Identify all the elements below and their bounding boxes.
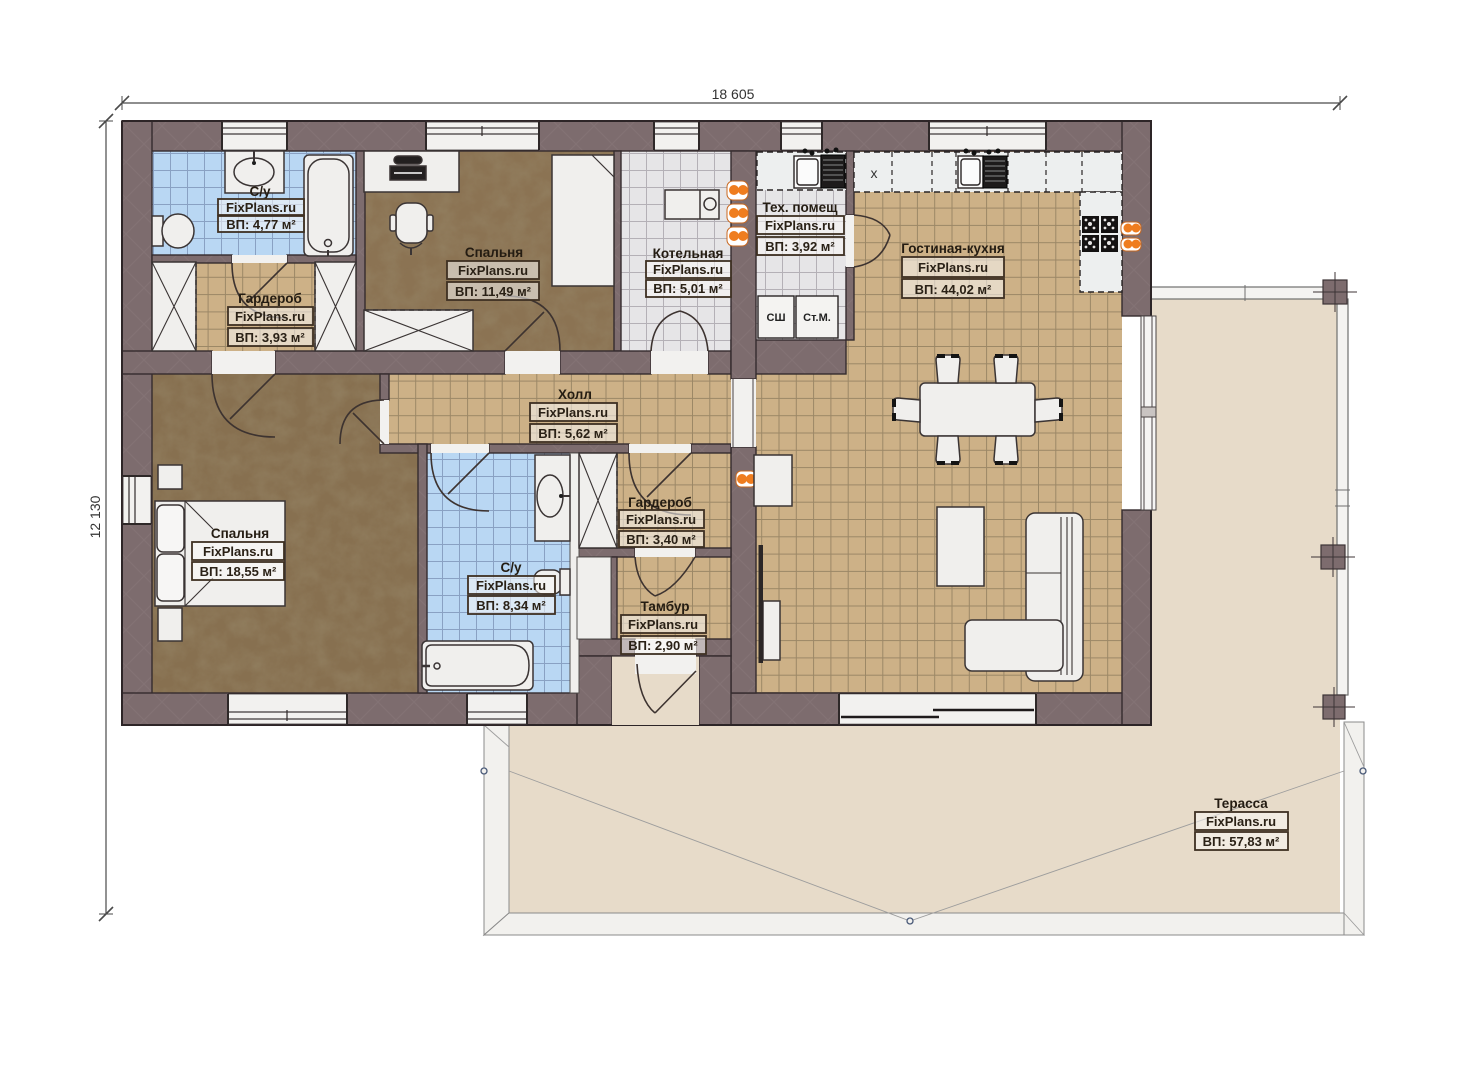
svg-text:FixPlans.ru: FixPlans.ru <box>458 263 528 278</box>
svg-text:ВП: 11,49 м²: ВП: 11,49 м² <box>455 284 532 299</box>
svg-text:FixPlans.ru: FixPlans.ru <box>476 578 546 593</box>
svg-text:ВП: 5,62 м²: ВП: 5,62 м² <box>538 426 608 441</box>
svg-text:Спальня: Спальня <box>211 526 269 541</box>
svg-text:Ст.М.: Ст.М. <box>803 312 831 324</box>
svg-text:ВП: 44,02 м²: ВП: 44,02 м² <box>915 282 992 297</box>
svg-text:Терасса: Терасса <box>1214 796 1268 811</box>
svg-text:12 130: 12 130 <box>87 495 103 538</box>
svg-text:ВП: 8,34 м²: ВП: 8,34 м² <box>476 598 546 613</box>
svg-text:Спальня: Спальня <box>465 245 523 260</box>
svg-text:FixPlans.ru: FixPlans.ru <box>626 512 696 527</box>
svg-text:ВП: 3,92 м²: ВП: 3,92 м² <box>765 239 835 254</box>
svg-text:ВП: 5,01 м²: ВП: 5,01 м² <box>653 281 723 296</box>
svg-text:ВП: 3,40 м²: ВП: 3,40 м² <box>626 532 696 547</box>
svg-text:С/у: С/у <box>249 184 271 199</box>
svg-text:Тамбур: Тамбур <box>641 599 690 614</box>
svg-text:FixPlans.ru: FixPlans.ru <box>628 617 698 632</box>
svg-text:Гостиная-кухня: Гостиная-кухня <box>901 241 1004 256</box>
svg-text:ВП: 57,83 м²: ВП: 57,83 м² <box>1203 834 1280 849</box>
svg-text:FixPlans.ru: FixPlans.ru <box>538 405 608 420</box>
svg-text:Гардероб: Гардероб <box>628 495 692 510</box>
svg-text:С/у: С/у <box>500 560 522 575</box>
svg-text:FixPlans.ru: FixPlans.ru <box>653 262 723 277</box>
svg-text:FixPlans.ru: FixPlans.ru <box>203 544 273 559</box>
svg-text:ВП: 3,93 м²: ВП: 3,93 м² <box>235 330 305 345</box>
svg-text:ВП: 18,55 м²: ВП: 18,55 м² <box>200 564 277 579</box>
svg-text:СШ: СШ <box>767 312 786 324</box>
svg-text:Гардероб: Гардероб <box>238 291 302 306</box>
svg-text:x: x <box>871 165 878 181</box>
svg-text:18 605: 18 605 <box>712 86 755 102</box>
svg-text:FixPlans.ru: FixPlans.ru <box>918 260 988 275</box>
svg-text:FixPlans.ru: FixPlans.ru <box>765 218 835 233</box>
svg-text:FixPlans.ru: FixPlans.ru <box>226 200 296 215</box>
svg-text:Тех. помещ: Тех. помещ <box>762 200 838 215</box>
svg-text:FixPlans.ru: FixPlans.ru <box>235 309 305 324</box>
svg-text:ВП: 4,77 м²: ВП: 4,77 м² <box>226 217 296 232</box>
svg-text:Котельная: Котельная <box>653 246 724 261</box>
svg-text:ВП: 2,90 м²: ВП: 2,90 м² <box>628 638 698 653</box>
svg-text:FixPlans.ru: FixPlans.ru <box>1206 814 1276 829</box>
svg-text:Холл: Холл <box>558 387 592 402</box>
